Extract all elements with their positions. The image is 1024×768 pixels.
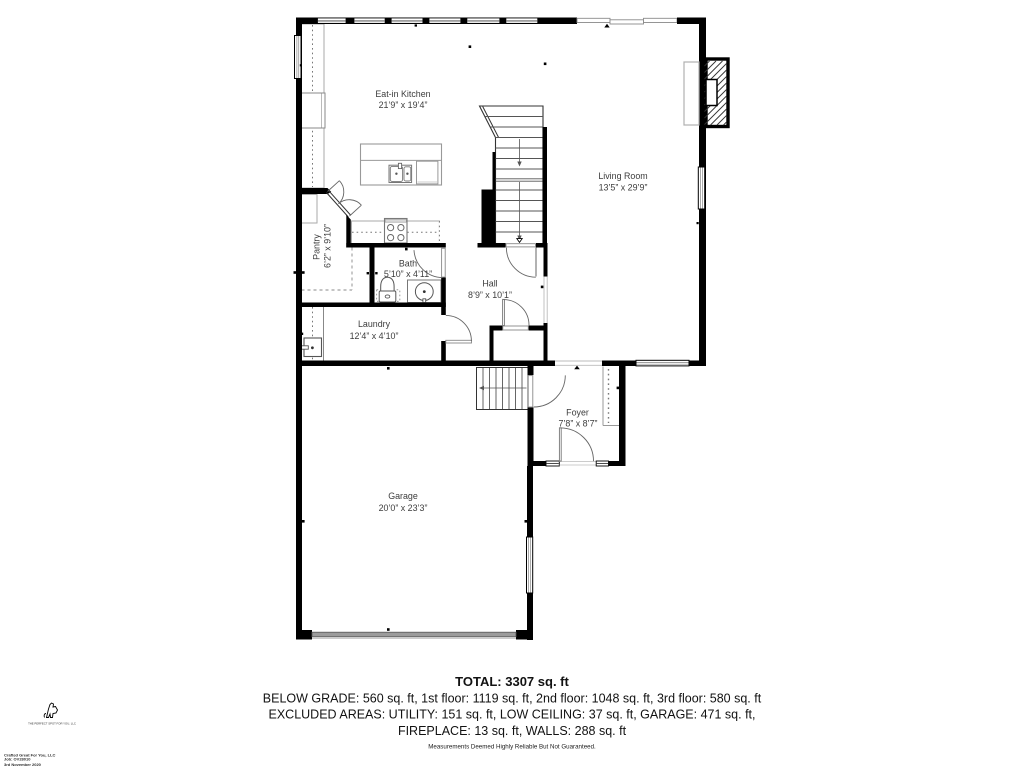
svg-text:Job: OV28010: Job: OV28010 bbox=[4, 757, 31, 762]
svg-text:Living Room: Living Room bbox=[598, 171, 647, 181]
svg-text:Pantry: Pantry bbox=[312, 234, 322, 260]
svg-text:Laundry: Laundry bbox=[358, 319, 391, 329]
svg-text:Foyer: Foyer bbox=[566, 408, 589, 418]
svg-text:TOTAL: 3307 sq. ft: TOTAL: 3307 sq. ft bbox=[455, 674, 569, 689]
svg-text:3rd November 2020: 3rd November 2020 bbox=[4, 762, 42, 767]
svg-text:12’4” x 4’10”: 12’4” x 4’10” bbox=[350, 331, 399, 341]
svg-text:Garage: Garage bbox=[388, 491, 418, 501]
svg-text:Measurements Deemed Highly Rel: Measurements Deemed Highly Reliable But … bbox=[428, 744, 596, 751]
svg-text:BELOW GRADE: 560 sq. ft, 1st f: BELOW GRADE: 560 sq. ft, 1st floor: 1119… bbox=[263, 691, 762, 705]
svg-text:13’5” x 29’9”: 13’5” x 29’9” bbox=[599, 183, 648, 193]
svg-text:Eat-in Kitchen: Eat-in Kitchen bbox=[375, 89, 430, 99]
svg-text:EXCLUDED AREAS: UTILITY: 151 s: EXCLUDED AREAS: UTILITY: 151 sq. ft, LOW… bbox=[269, 708, 756, 722]
svg-text:6’2” x 9’10”: 6’2” x 9’10” bbox=[323, 224, 333, 268]
svg-text:FIREPLACE: 13 sq. ft, WALLS: 2: FIREPLACE: 13 sq. ft, WALLS: 288 sq. ft bbox=[398, 724, 627, 738]
svg-text:20’0” x 23’3”: 20’0” x 23’3” bbox=[379, 503, 428, 513]
svg-text:Bath: Bath bbox=[399, 259, 417, 269]
svg-text:Hall: Hall bbox=[482, 279, 497, 289]
svg-text:THE PERFECT SPOT FOR YOU, LLC: THE PERFECT SPOT FOR YOU, LLC bbox=[28, 722, 76, 726]
svg-text:7’8” x 8’7”: 7’8” x 8’7” bbox=[559, 419, 598, 429]
svg-text:8’9” x 10’1”: 8’9” x 10’1” bbox=[468, 290, 512, 300]
svg-text:5’10” x 4’11”: 5’10” x 4’11” bbox=[384, 269, 432, 279]
svg-text:21’9” x 19’4”: 21’9” x 19’4” bbox=[379, 100, 428, 110]
